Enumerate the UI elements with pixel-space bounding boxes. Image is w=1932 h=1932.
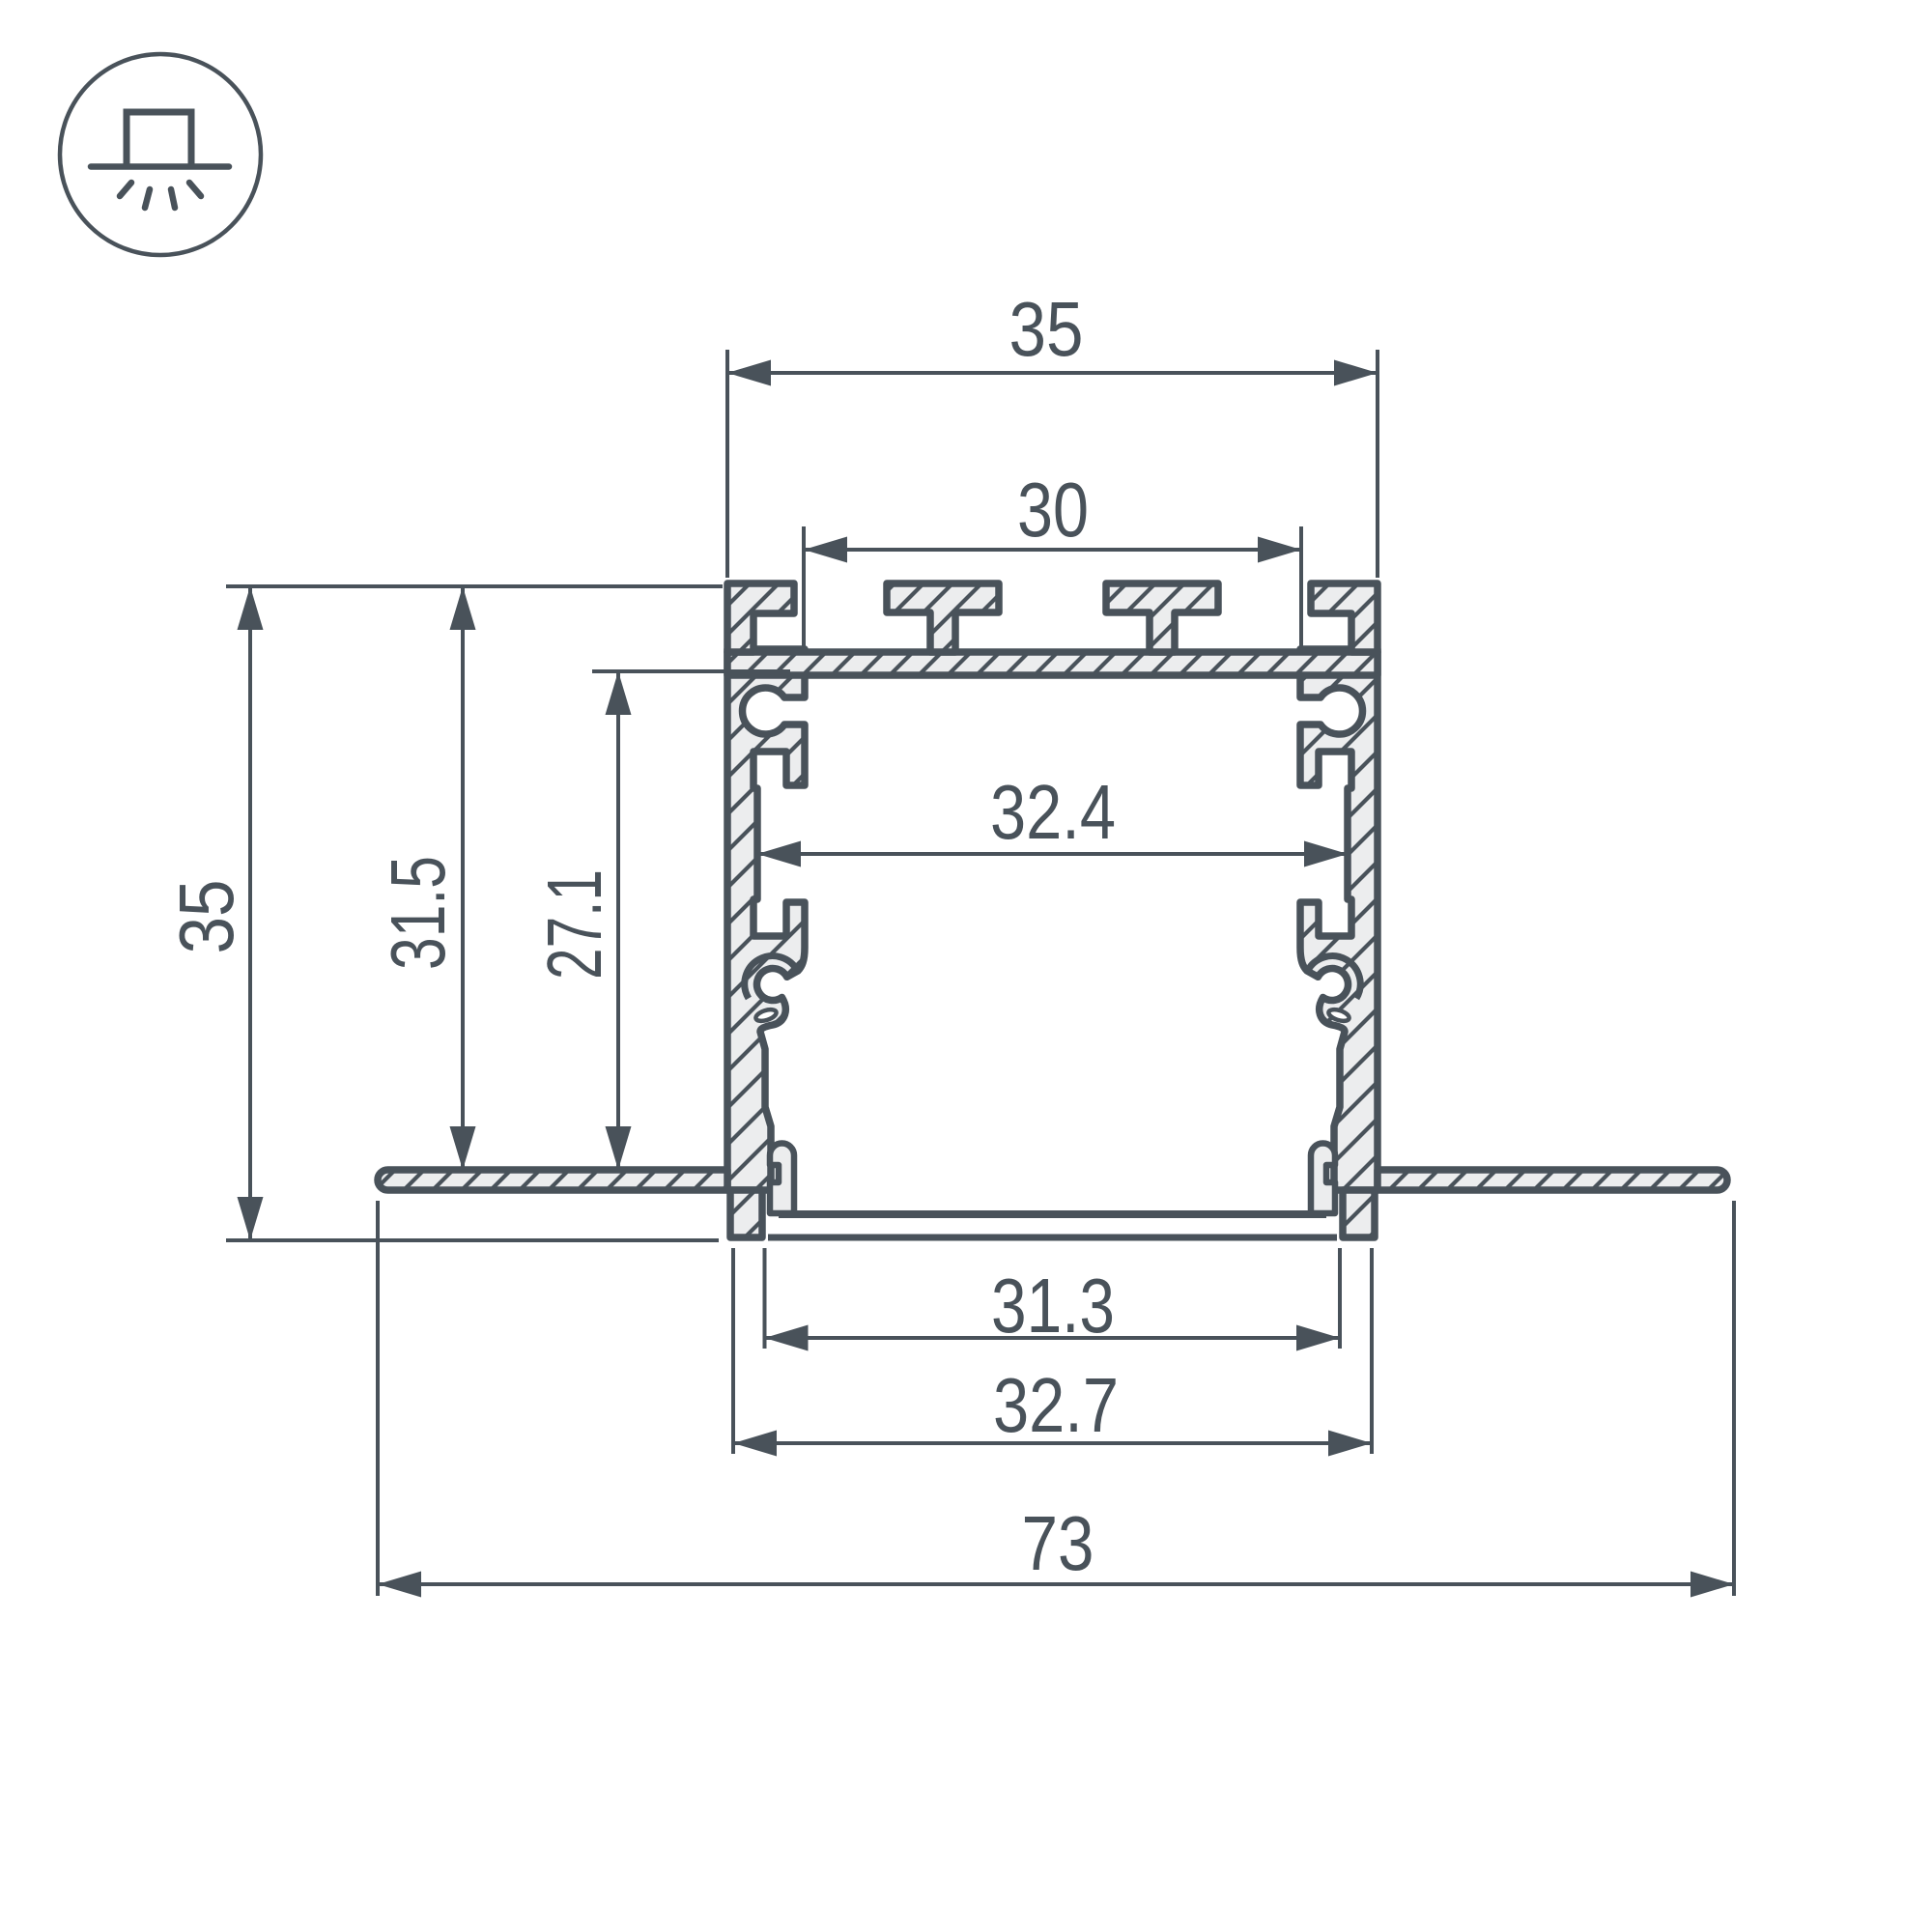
svg-text:35: 35 <box>163 880 249 954</box>
svg-text:32.7: 32.7 <box>993 1362 1119 1448</box>
svg-text:73: 73 <box>1022 1500 1094 1586</box>
svg-text:35: 35 <box>1009 286 1084 372</box>
svg-text:32.4: 32.4 <box>990 769 1116 855</box>
svg-text:27.1: 27.1 <box>531 869 617 980</box>
svg-text:31.3: 31.3 <box>991 1263 1115 1349</box>
svg-text:30: 30 <box>1017 467 1089 553</box>
svg-text:31.5: 31.5 <box>375 856 461 970</box>
